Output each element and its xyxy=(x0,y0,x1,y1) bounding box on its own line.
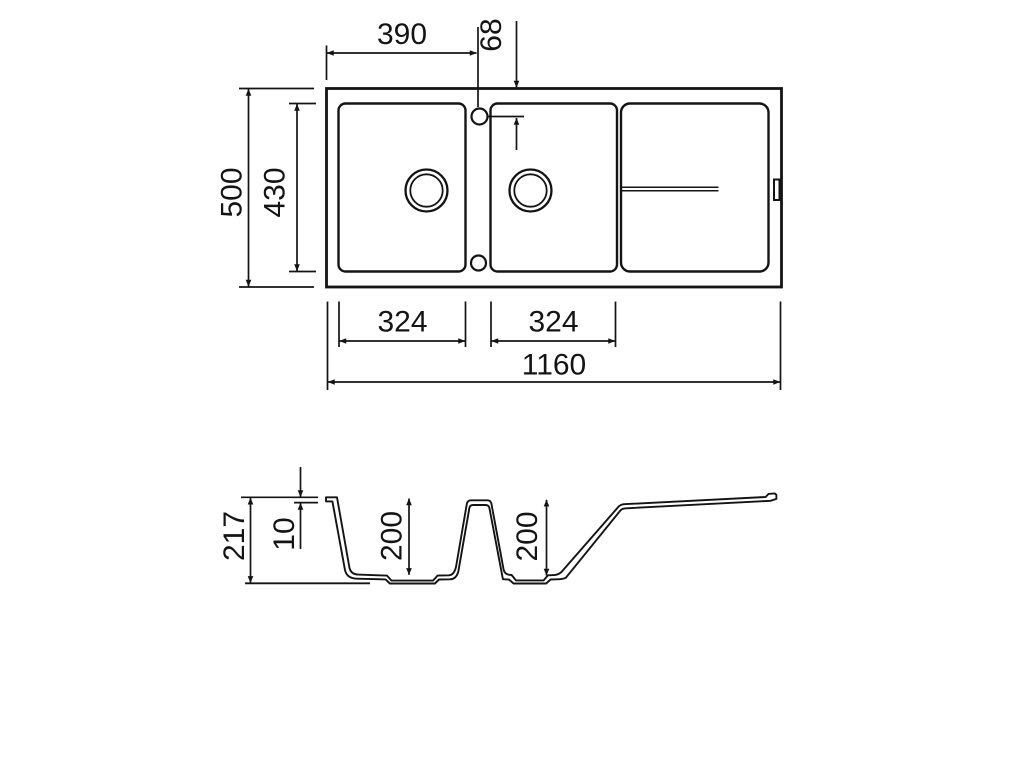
drain-hole-bowl-2 xyxy=(510,170,552,212)
dim-430: 430 xyxy=(259,104,317,272)
drain-hole-bowl-1 xyxy=(406,170,448,212)
dim-324-bowl2: 324 xyxy=(491,302,616,348)
dim-324-bowl1: 324 xyxy=(339,302,466,348)
dim-label-430: 430 xyxy=(259,167,292,217)
plan-view: 390 68 500 430 324 xyxy=(216,18,782,390)
dim-label-324-bowl1: 324 xyxy=(377,306,427,339)
dim-label-200-bowl2: 200 xyxy=(511,511,544,561)
dim-390: 390 xyxy=(327,18,479,107)
dim-10: 10 xyxy=(268,467,318,551)
dim-label-200-bowl1: 200 xyxy=(376,511,409,561)
dim-label-390: 390 xyxy=(377,18,427,51)
dim-200-bowl2: 200 xyxy=(511,500,547,576)
section-view: 217 10 200 200 xyxy=(218,467,776,584)
tap-hole-bottom xyxy=(471,256,486,271)
drainboard-groove xyxy=(622,187,719,190)
dim-200-bowl1: 200 xyxy=(376,499,410,575)
dim-label-1160: 1160 xyxy=(522,349,587,382)
technical-drawing-page: 390 68 500 430 324 xyxy=(0,0,1024,768)
dim-label-68: 68 xyxy=(475,18,508,51)
dim-label-500: 500 xyxy=(216,167,249,217)
sink-dimension-drawing: 390 68 500 430 324 xyxy=(0,0,1024,768)
tap-hole-top xyxy=(472,109,488,125)
dim-label-10: 10 xyxy=(268,517,301,550)
dim-label-217: 217 xyxy=(218,511,251,561)
dim-68: 68 xyxy=(475,18,524,150)
dim-label-324-bowl2: 324 xyxy=(528,306,578,339)
overflow-slot xyxy=(774,180,780,201)
